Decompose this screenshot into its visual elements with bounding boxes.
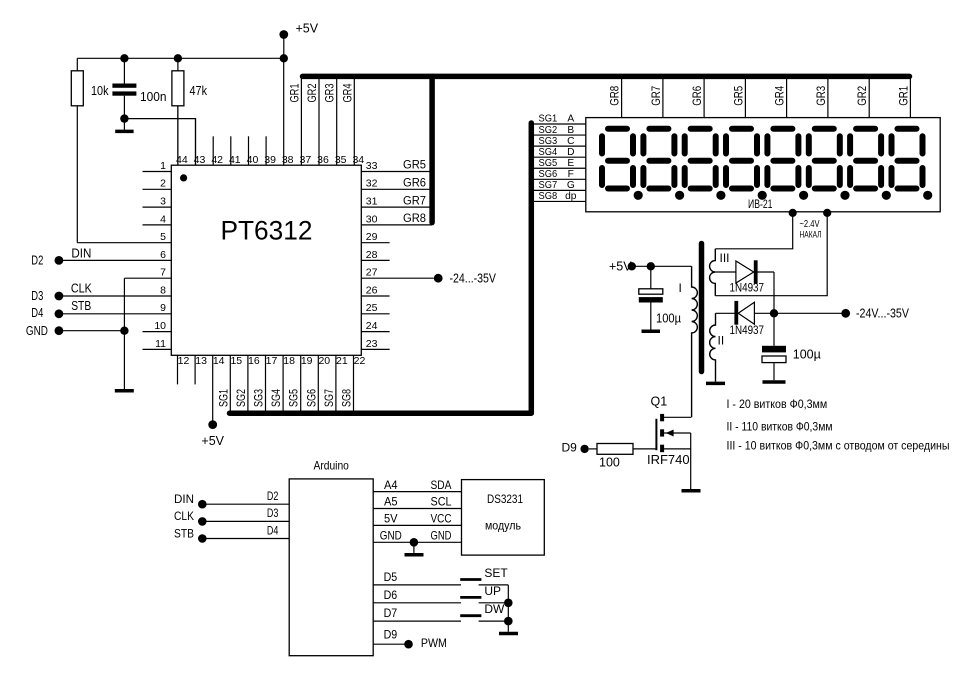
svg-text:STB: STB bbox=[174, 526, 194, 540]
svg-text:dp: dp bbox=[565, 191, 577, 202]
svg-text:1: 1 bbox=[160, 160, 166, 172]
svg-text:12: 12 bbox=[178, 355, 190, 367]
svg-text:SG4: SG4 bbox=[539, 147, 558, 158]
svg-text:42: 42 bbox=[211, 154, 223, 166]
svg-text:SG1: SG1 bbox=[218, 389, 230, 407]
svg-text:47k: 47k bbox=[190, 83, 208, 98]
svg-text:D9: D9 bbox=[384, 628, 398, 642]
svg-text:37: 37 bbox=[300, 154, 312, 166]
svg-text:GND: GND bbox=[26, 324, 48, 338]
svg-text:B: B bbox=[567, 125, 574, 136]
svg-text:GR7: GR7 bbox=[651, 86, 663, 106]
svg-text:ИВ-21: ИВ-21 bbox=[748, 199, 773, 211]
svg-text:44: 44 bbox=[176, 154, 188, 166]
svg-text:PT6312: PT6312 bbox=[221, 216, 313, 246]
svg-text:41: 41 bbox=[229, 154, 241, 166]
svg-text:8: 8 bbox=[160, 284, 166, 296]
svg-text:25: 25 bbox=[366, 302, 378, 314]
svg-text:100µ: 100µ bbox=[656, 312, 681, 326]
svg-text:GR5: GR5 bbox=[403, 160, 426, 172]
svg-text:SDA: SDA bbox=[431, 478, 452, 492]
svg-text:GR2: GR2 bbox=[307, 84, 319, 103]
svg-text:10k: 10k bbox=[91, 83, 109, 98]
svg-text:DW: DW bbox=[484, 602, 505, 616]
svg-text:GR8: GR8 bbox=[403, 213, 426, 225]
svg-text:5: 5 bbox=[160, 231, 166, 243]
svg-text:SG3: SG3 bbox=[539, 136, 558, 147]
svg-text:1N4937: 1N4937 bbox=[730, 323, 765, 337]
svg-text:~2.4V: ~2.4V bbox=[800, 219, 820, 230]
svg-text:CLK: CLK bbox=[71, 282, 93, 296]
svg-text:100n: 100n bbox=[140, 89, 167, 104]
svg-text:SG6: SG6 bbox=[539, 169, 558, 180]
svg-text:SG8: SG8 bbox=[342, 389, 354, 407]
svg-text:D4: D4 bbox=[31, 306, 43, 320]
svg-text:SG7: SG7 bbox=[539, 180, 558, 191]
svg-text:D5: D5 bbox=[384, 570, 398, 584]
svg-text:UP: UP bbox=[484, 584, 501, 598]
svg-text:2: 2 bbox=[160, 178, 166, 190]
svg-text:SG6: SG6 bbox=[306, 389, 318, 407]
svg-text:GR8: GR8 bbox=[610, 86, 622, 106]
svg-text:4: 4 bbox=[160, 213, 166, 225]
svg-text:SET: SET bbox=[484, 566, 508, 580]
svg-text:10: 10 bbox=[154, 320, 166, 332]
svg-text:GR5: GR5 bbox=[733, 86, 745, 106]
svg-text:5V: 5V bbox=[384, 512, 398, 526]
svg-text:D2: D2 bbox=[31, 253, 43, 267]
svg-text:D2: D2 bbox=[267, 489, 279, 503]
svg-text:26: 26 bbox=[366, 284, 378, 296]
svg-text:D3: D3 bbox=[31, 289, 43, 303]
svg-text:DIN: DIN bbox=[174, 492, 194, 506]
svg-text:III: III bbox=[720, 251, 730, 265]
svg-text:39: 39 bbox=[264, 154, 276, 166]
svg-text:GR3: GR3 bbox=[325, 84, 337, 103]
svg-text:CLK: CLK bbox=[174, 509, 194, 523]
svg-text:GR7: GR7 bbox=[403, 195, 426, 207]
svg-text:100: 100 bbox=[599, 456, 620, 470]
svg-text:VCC: VCC bbox=[431, 512, 452, 526]
svg-text:D9: D9 bbox=[562, 441, 578, 455]
svg-text:SG1: SG1 bbox=[539, 114, 558, 125]
svg-text:22: 22 bbox=[354, 355, 366, 367]
svg-text:14: 14 bbox=[213, 355, 225, 367]
svg-text:D3: D3 bbox=[267, 506, 279, 520]
svg-text:D: D bbox=[567, 147, 574, 158]
svg-text:I - 20 витков Ф0,3мм: I - 20 витков Ф0,3мм bbox=[727, 397, 828, 411]
svg-text:I: I bbox=[679, 281, 682, 295]
svg-text:III - 10 витков Ф0,3мм с отвод: III - 10 витков Ф0,3мм с отводом от сере… bbox=[727, 439, 950, 453]
svg-text:SG4: SG4 bbox=[271, 389, 283, 407]
svg-text:SCL: SCL bbox=[431, 495, 452, 509]
svg-text:15: 15 bbox=[230, 355, 242, 367]
svg-text:35: 35 bbox=[335, 154, 347, 166]
svg-text:19: 19 bbox=[301, 355, 313, 367]
svg-text:SG7: SG7 bbox=[324, 389, 336, 407]
svg-text:G: G bbox=[567, 180, 575, 191]
svg-text:GR4: GR4 bbox=[342, 83, 354, 102]
svg-text:НАКАЛ: НАКАЛ bbox=[800, 230, 822, 240]
svg-text:II - 110 витков Ф0,3мм: II - 110 витков Ф0,3мм bbox=[727, 420, 833, 434]
svg-text:D6: D6 bbox=[384, 588, 398, 602]
svg-text:SG5: SG5 bbox=[539, 158, 558, 169]
svg-text:SG3: SG3 bbox=[254, 389, 266, 407]
svg-text:16: 16 bbox=[248, 355, 260, 367]
svg-text:A5: A5 bbox=[384, 495, 398, 509]
svg-text:33: 33 bbox=[366, 160, 378, 172]
svg-text:STB: STB bbox=[71, 299, 91, 313]
svg-text:SG2: SG2 bbox=[539, 125, 558, 136]
svg-text:13: 13 bbox=[195, 355, 207, 367]
svg-text:40: 40 bbox=[247, 154, 259, 166]
svg-text:SG8: SG8 bbox=[539, 191, 558, 202]
svg-text:100µ: 100µ bbox=[793, 348, 821, 362]
svg-text:A4: A4 bbox=[384, 478, 398, 492]
svg-text:SG5: SG5 bbox=[289, 389, 301, 407]
svg-text:PWM: PWM bbox=[421, 636, 447, 650]
svg-text:GR1: GR1 bbox=[289, 84, 301, 103]
svg-text:GND: GND bbox=[380, 529, 402, 543]
svg-text:E: E bbox=[567, 158, 574, 169]
svg-text:-24V...-35V: -24V...-35V bbox=[856, 306, 910, 320]
svg-text:GR1: GR1 bbox=[898, 86, 910, 106]
svg-text:II: II bbox=[718, 334, 725, 348]
svg-text:GR6: GR6 bbox=[692, 86, 704, 106]
svg-text:GND: GND bbox=[431, 529, 452, 543]
svg-text:D7: D7 bbox=[384, 606, 398, 620]
svg-text:модуль: модуль bbox=[485, 519, 521, 533]
svg-text:20: 20 bbox=[318, 355, 330, 367]
svg-text:7: 7 bbox=[160, 267, 166, 279]
svg-text:32: 32 bbox=[366, 178, 378, 190]
svg-text:38: 38 bbox=[282, 154, 294, 166]
svg-text:18: 18 bbox=[283, 355, 295, 367]
svg-text:IRF740: IRF740 bbox=[647, 453, 690, 467]
svg-text:9: 9 bbox=[160, 302, 166, 314]
svg-text:GR3: GR3 bbox=[816, 86, 828, 106]
svg-text:3: 3 bbox=[160, 196, 166, 208]
svg-text:GR4: GR4 bbox=[775, 85, 787, 106]
svg-text:31: 31 bbox=[366, 196, 378, 208]
svg-text:GR2: GR2 bbox=[857, 86, 869, 106]
svg-text:Q1: Q1 bbox=[651, 395, 668, 409]
svg-text:SG2: SG2 bbox=[236, 389, 248, 407]
svg-text:1N4937: 1N4937 bbox=[730, 281, 765, 295]
svg-text:Arduino: Arduino bbox=[314, 458, 350, 472]
svg-text:A: A bbox=[567, 114, 574, 125]
svg-text:23: 23 bbox=[366, 338, 378, 350]
svg-text:+5V: +5V bbox=[296, 22, 319, 36]
svg-text:-24...-35V: -24...-35V bbox=[450, 271, 497, 285]
svg-text:DIN: DIN bbox=[71, 246, 91, 260]
svg-text:+5V: +5V bbox=[201, 434, 224, 448]
svg-text:6: 6 bbox=[160, 249, 166, 261]
svg-text:11: 11 bbox=[155, 338, 166, 350]
svg-text:24: 24 bbox=[366, 320, 378, 332]
svg-text:D4: D4 bbox=[267, 523, 279, 537]
svg-text:C: C bbox=[567, 136, 574, 147]
svg-text:21: 21 bbox=[336, 355, 348, 367]
svg-text:30: 30 bbox=[366, 213, 378, 225]
svg-text:F: F bbox=[568, 169, 574, 180]
svg-text:43: 43 bbox=[194, 154, 206, 166]
svg-text:28: 28 bbox=[366, 249, 378, 261]
svg-text:DS3231: DS3231 bbox=[487, 492, 523, 506]
svg-text:34: 34 bbox=[352, 154, 364, 166]
svg-text:29: 29 bbox=[366, 231, 378, 243]
svg-text:27: 27 bbox=[366, 267, 378, 279]
svg-text:GR6: GR6 bbox=[403, 178, 426, 190]
svg-text:17: 17 bbox=[266, 355, 278, 367]
svg-text:36: 36 bbox=[317, 154, 329, 166]
